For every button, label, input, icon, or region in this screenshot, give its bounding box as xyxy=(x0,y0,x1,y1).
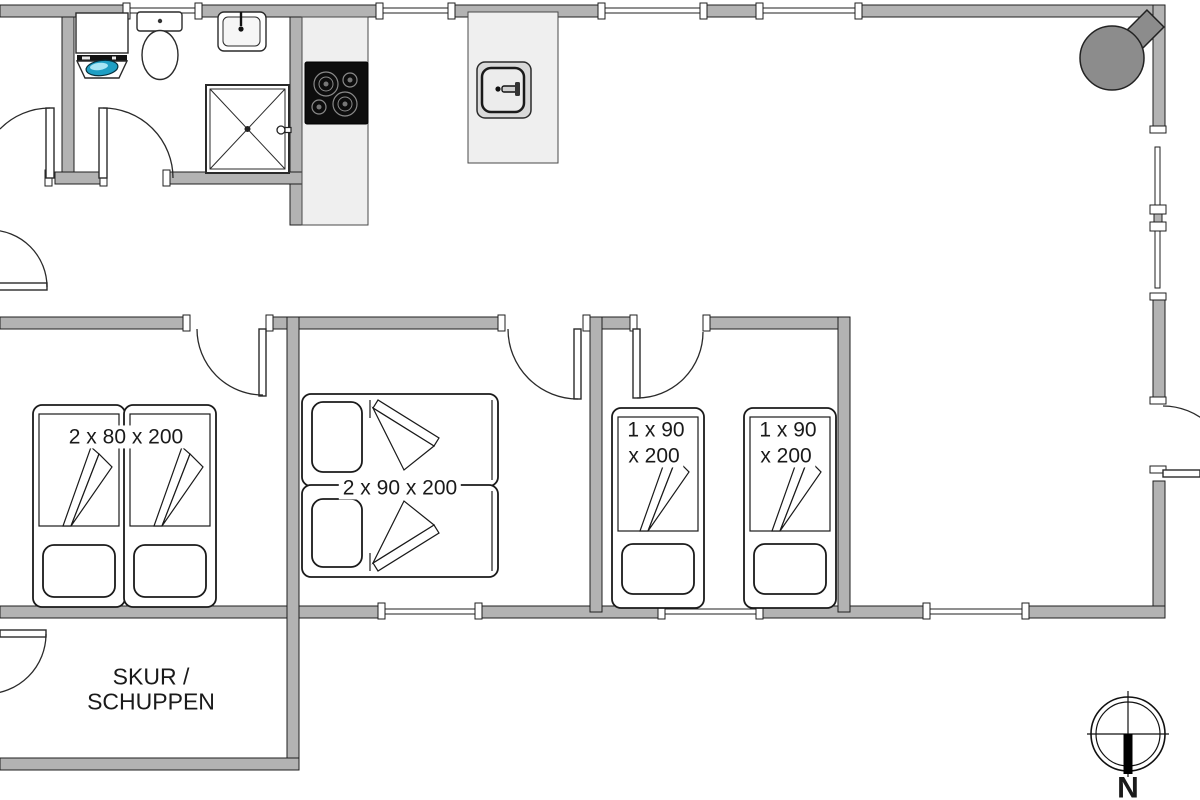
bed-size-label-3-line1: 1 x 90 xyxy=(623,418,688,441)
wall xyxy=(838,317,850,612)
compass-north-label: N xyxy=(1117,772,1139,800)
compass-rose-icon xyxy=(1087,691,1169,777)
wood-stove-icon xyxy=(1080,10,1164,90)
toilet-icon xyxy=(137,12,182,80)
bed-size-label-left: 2 x 80 x 200 xyxy=(65,425,187,448)
wall xyxy=(855,5,1165,17)
kitchen-counter xyxy=(302,17,368,225)
wall xyxy=(62,17,74,178)
wall xyxy=(272,317,505,329)
window xyxy=(1155,147,1160,205)
washbasin-icon xyxy=(218,12,266,51)
window xyxy=(930,609,1022,614)
window-mullion xyxy=(1150,205,1166,231)
window xyxy=(383,8,448,13)
bed-size-label-middle: 2 x 90 x 200 xyxy=(339,476,461,499)
door-swing xyxy=(0,108,54,178)
door-swing xyxy=(0,630,46,694)
wall xyxy=(1153,481,1165,618)
door-swing xyxy=(99,108,173,178)
shed-label-line1: SKUR / xyxy=(109,664,194,689)
shed-label-line2: SCHUPPEN xyxy=(83,689,219,714)
kitchen-island xyxy=(468,12,558,163)
wall xyxy=(700,5,763,17)
door-swing xyxy=(508,329,581,399)
window xyxy=(605,8,700,13)
door-swing xyxy=(633,329,703,398)
wall xyxy=(290,17,302,225)
washing-machine-icon xyxy=(76,13,128,78)
kitchen-sink-icon xyxy=(477,62,531,118)
window xyxy=(665,609,763,614)
wall xyxy=(590,317,602,612)
wall xyxy=(703,317,850,329)
shower-icon xyxy=(206,85,291,173)
window xyxy=(763,8,855,13)
wall xyxy=(1153,300,1165,397)
window xyxy=(1155,230,1160,288)
wall xyxy=(0,758,299,770)
wall xyxy=(55,172,101,184)
bed-size-label-4-line1: 1 x 90 xyxy=(755,418,820,441)
bed-size-label-4-line2: x 200 xyxy=(756,444,815,467)
door-swing xyxy=(197,329,266,396)
cooktop-icon xyxy=(305,62,368,124)
window xyxy=(385,609,475,614)
floor-plan: 2 x 80 x 200 2 x 90 x 200 1 x 90 x 200 1… xyxy=(0,0,1200,800)
wall xyxy=(0,317,190,329)
wall xyxy=(287,317,299,770)
wall xyxy=(1022,606,1165,618)
door-swing xyxy=(0,230,47,290)
bed-size-label-3-line2: x 200 xyxy=(624,444,683,467)
door-swing xyxy=(1163,406,1200,477)
